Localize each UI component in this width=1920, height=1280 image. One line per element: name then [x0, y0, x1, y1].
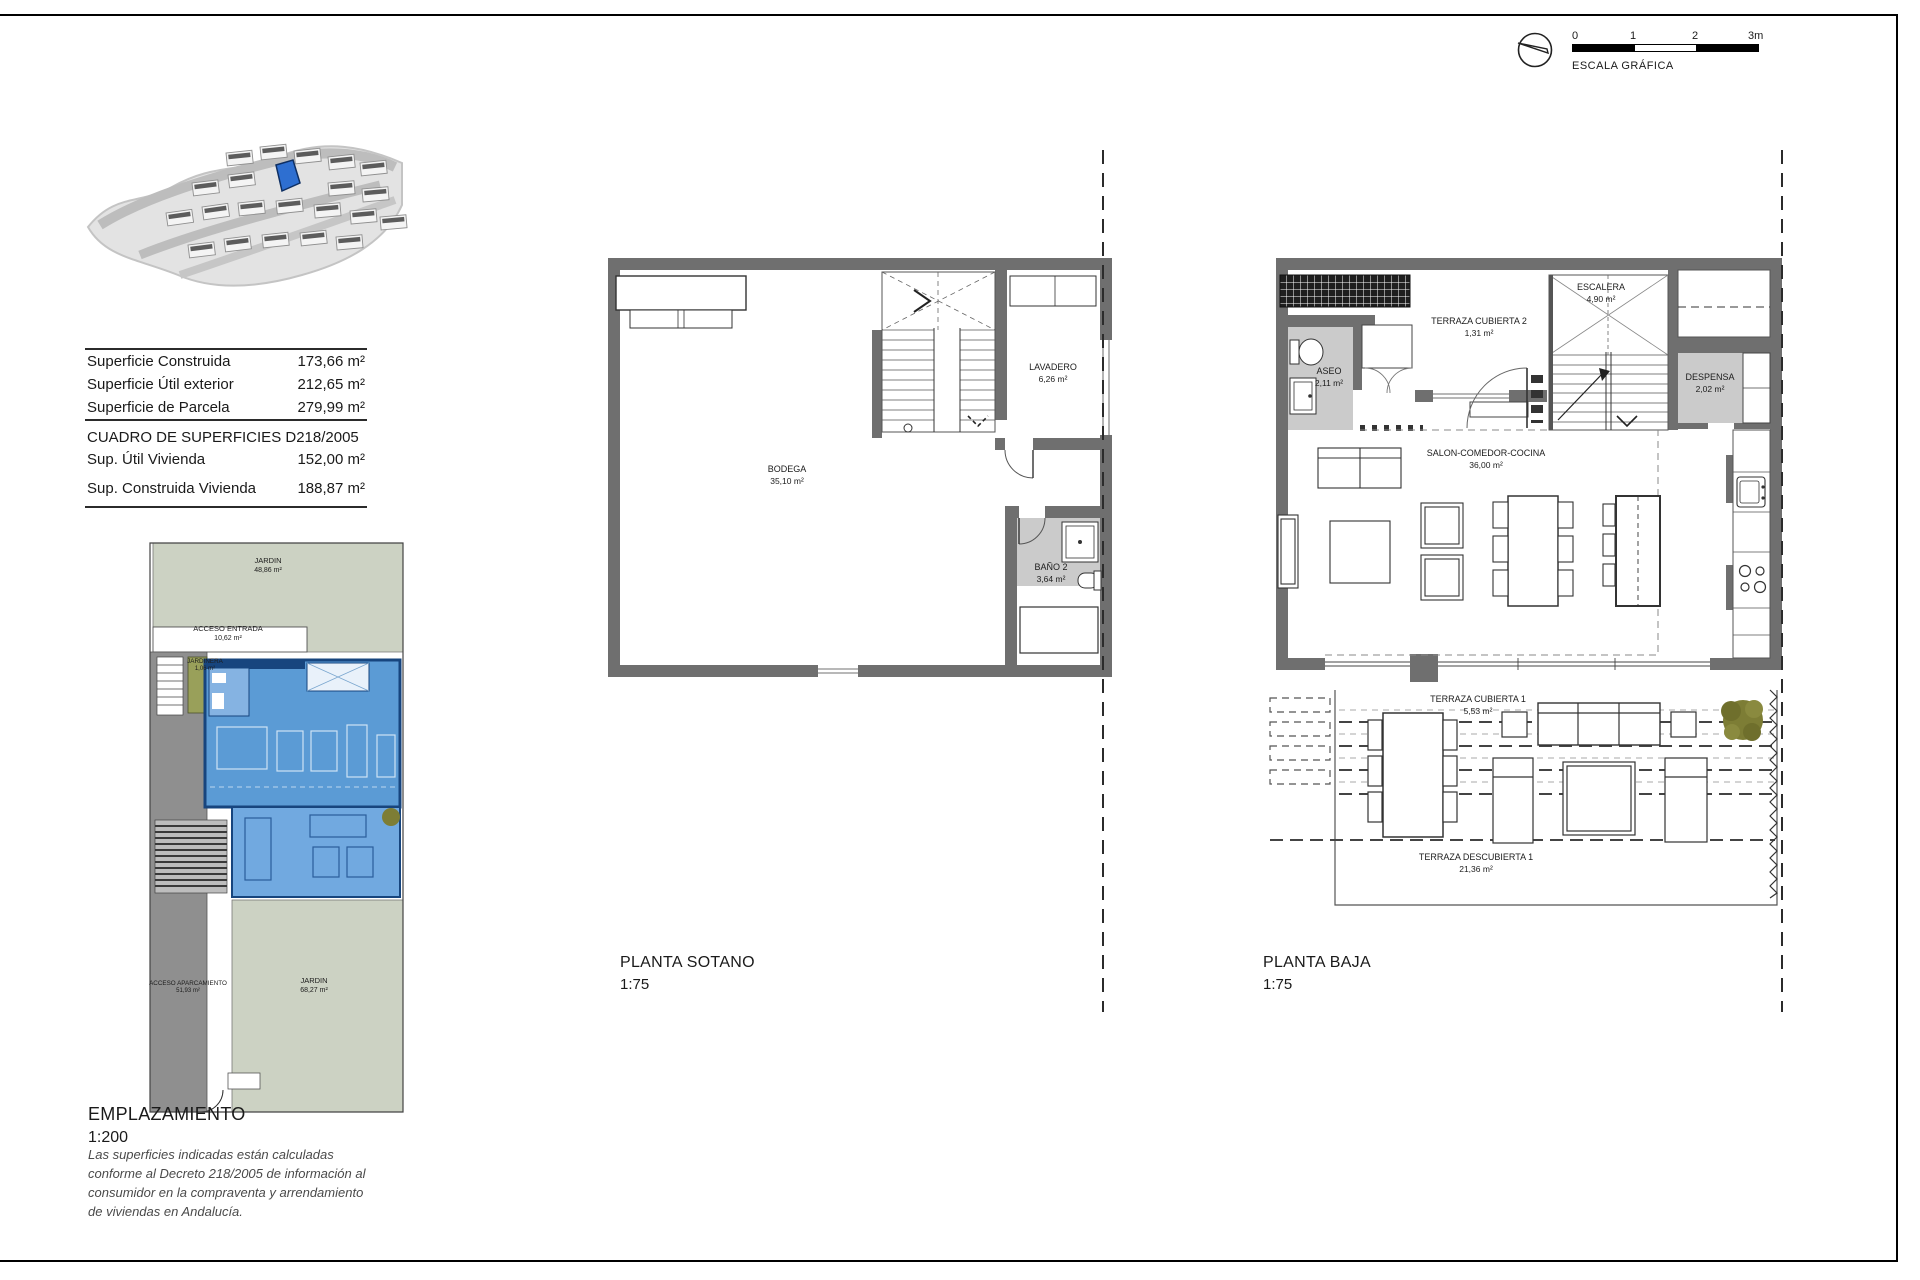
plan-title-baja: PLANTA BAJA 1:75: [1263, 952, 1371, 995]
room-label-terraza-descubierta1: TERRAZA DESCUBIERTA 121,36 m²: [1419, 852, 1533, 875]
scale-tick: 2: [1692, 30, 1698, 42]
section-line: [1102, 150, 1104, 1012]
pergola-louver-grid: [1280, 275, 1410, 307]
table-row: Superficie Útil exterior 212,65 m²: [85, 373, 367, 396]
area-label-jardinera: JARDINERA1,06 m²: [187, 658, 223, 674]
decree-table-header: CUADRO DE SUPERFICIES D218/2005: [85, 421, 367, 448]
sink-icon: [1737, 477, 1765, 507]
planta-sotano-plan: [600, 240, 1160, 710]
room-label-escalera: ESCALERA4,90 m²: [1577, 282, 1625, 305]
north-arrow-icon: [1514, 28, 1558, 72]
row-label: Superficie Construida: [87, 353, 230, 370]
room-label-bano2: BAÑO 23,64 m²: [1034, 562, 1067, 585]
room-label-terraza-cubierta2: TERRAZA CUBIERTA 21,31 m²: [1431, 316, 1527, 339]
scale-tick: 1: [1630, 30, 1636, 42]
plan-title-emplazamiento: EMPLAZAMIENTO 1:200: [88, 1102, 246, 1150]
sheet-border-right: [1896, 14, 1898, 1262]
tree-icon: [382, 808, 400, 826]
row-label: Sup. Construida Vivienda: [87, 480, 256, 497]
toilet-icon: [1290, 339, 1323, 365]
room-label-salon: SALON-COMEDOR-COCINA36,00 m²: [1427, 448, 1546, 471]
area-label-jardin-top: JARDIN48,86 m²: [254, 556, 282, 575]
room-label-terraza-cubierta1: TERRAZA CUBIERTA 15,53 m²: [1430, 694, 1526, 717]
site-overview-image: [80, 105, 410, 300]
row-label: Superficie Útil exterior: [87, 376, 234, 393]
room-label-bodega: BODEGA35,10 m²: [768, 464, 807, 487]
table-row: Superficie de Parcela 279,99 m²: [85, 396, 367, 419]
room-label-despensa: DESPENSA2,02 m²: [1685, 372, 1734, 395]
table-row: Sup. Útil Vivienda 152,00 m²: [85, 448, 367, 471]
plan-title-sotano: PLANTA SOTANO 1:75: [620, 952, 755, 995]
emplazamiento-plan: [115, 535, 425, 1120]
toilet-icon: [1078, 571, 1101, 590]
section-line: [1781, 150, 1783, 1012]
sheet-border-top: [0, 14, 1898, 16]
row-value: 279,99 m²: [297, 399, 365, 416]
washbasin-icon: [1290, 378, 1316, 414]
scale-bar: 0 1 2 3m ESCALA GRÁFICA: [1572, 30, 1762, 72]
area-label-jardin-bottom: JARDIN68,27 m²: [300, 976, 328, 995]
row-value: 212,65 m²: [297, 376, 365, 393]
row-label: Sup. Útil Vivienda: [87, 451, 205, 468]
planta-baja-plan: [1265, 240, 1825, 970]
plan-sheet: 0 1 2 3m ESCALA GRÁFICA: [0, 0, 1920, 1280]
row-value: 188,87 m²: [297, 480, 365, 497]
scale-tick: 3m: [1748, 30, 1763, 42]
row-value: 152,00 m²: [297, 451, 365, 468]
tree-icon: [1721, 700, 1763, 741]
area-label-acceso-aparcamiento: ACCESO APARCAMIENTO51,93 m²: [149, 980, 227, 996]
room-label-lavadero: LAVADERO6,26 m²: [1029, 362, 1077, 385]
salon-furniture: [1278, 448, 1660, 606]
staircase: [882, 272, 995, 432]
shower-icon: [1062, 522, 1098, 562]
row-value: 173,66 m²: [297, 353, 365, 370]
scale-bar-caption: ESCALA GRÁFICA: [1572, 60, 1762, 72]
sheet-border-bottom: [0, 1260, 1898, 1262]
surfaces-table: Superficie Construida 173,66 m² Superfic…: [85, 348, 367, 508]
decree-disclaimer: Las superficies indicadas están calculad…: [88, 1146, 380, 1221]
scale-bar-segments: [1572, 44, 1759, 52]
area-label-acceso-entrada: ACCESO ENTRADA10,62 m²: [193, 624, 263, 643]
table-row: Superficie Construida 173,66 m²: [85, 350, 367, 373]
row-label: Superficie de Parcela: [87, 399, 230, 416]
scale-tick: 0: [1572, 30, 1578, 42]
room-label-aseo: ASEO2,11 m²: [1315, 366, 1343, 389]
terrace-furniture: [1368, 703, 1707, 843]
highlighted-floorplan-overlay: [205, 660, 400, 897]
table-row: Sup. Construida Vivienda 188,87 m²: [85, 471, 367, 500]
